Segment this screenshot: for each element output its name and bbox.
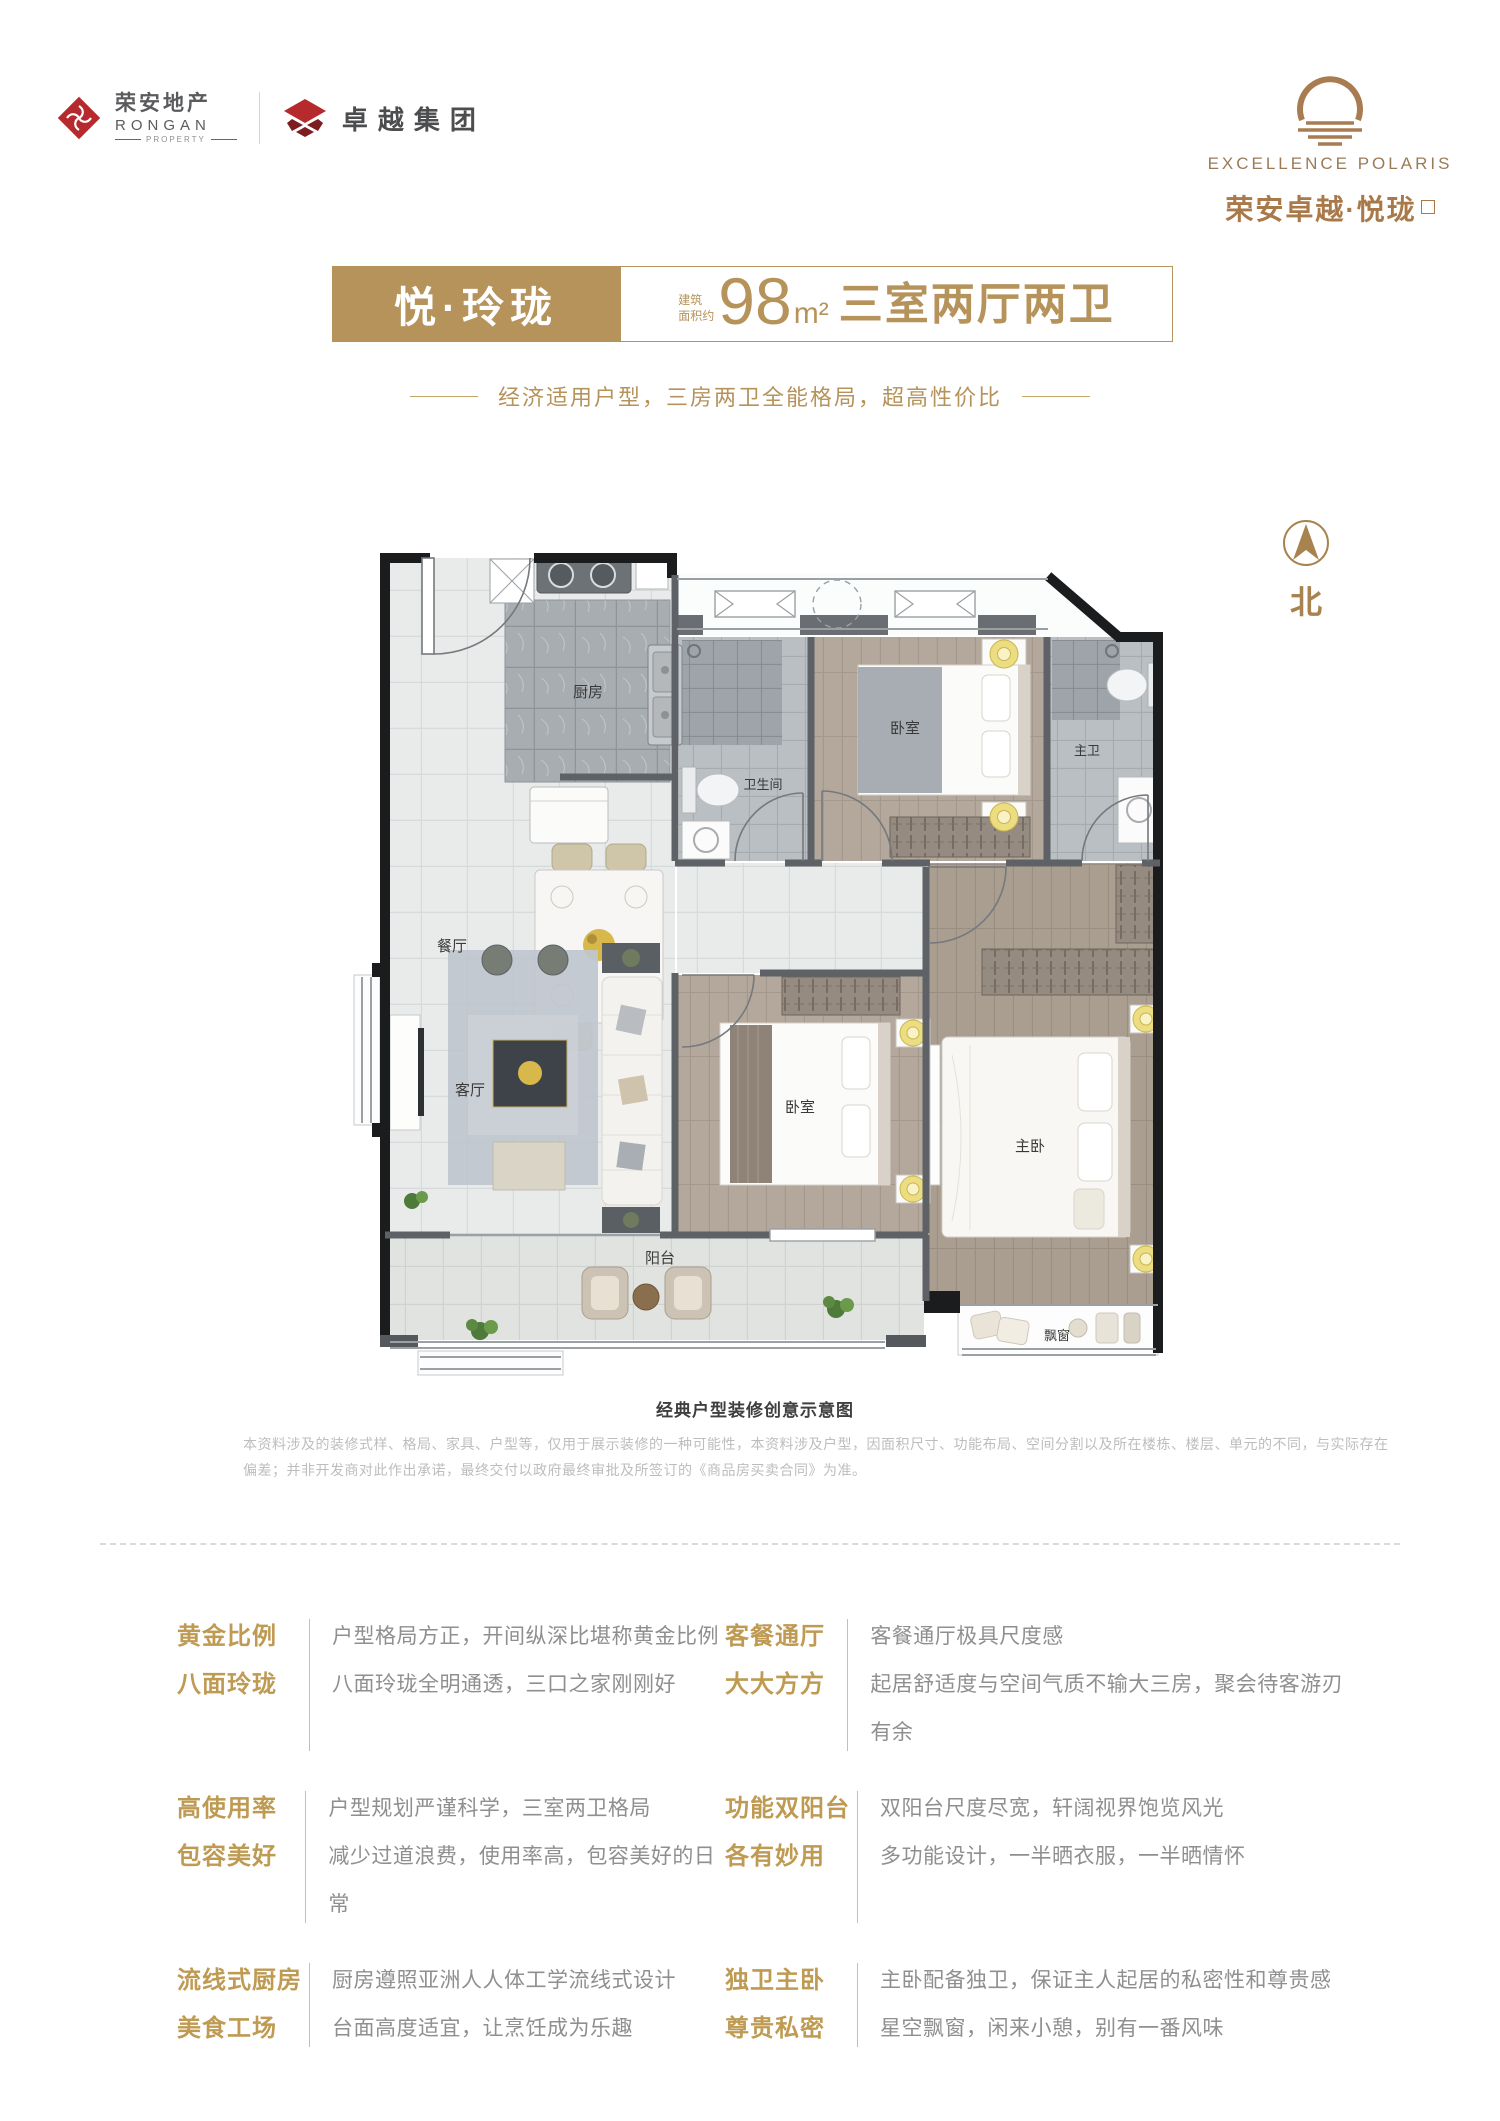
feature-title: 独卫主卧尊贵私密 (725, 1957, 851, 2053)
room-label-balcony: 阳台 (645, 1250, 675, 1267)
poster-page: 荣安地产 RONGAN PROPERTY 卓越集团 EXCELLENCE POL… (0, 0, 1500, 2121)
ceiling-lamp-icon (900, 1176, 926, 1202)
room-label-master-bedroom: 主卧 (1015, 1138, 1045, 1155)
feature-title: 高使用率包容美好 (177, 1785, 299, 1929)
area-value: 98 (718, 268, 791, 341)
developer-logos: 荣安地产 RONGAN PROPERTY 卓越集团 (55, 92, 486, 144)
ceiling-lamp-icon (990, 803, 1018, 831)
project-name-cn-row: 荣安卓越·悦珑 (1225, 188, 1434, 228)
toilet-icon (1107, 669, 1147, 701)
feature-desc: 客餐通厅极具尺度感起居舒适度与空间气质不输大三房，聚会待客游刃有余 (870, 1613, 1347, 1757)
floor-plan: 厨房 餐厅 客厅 阳台 卫生间 卧室 主卫 卧室 主卧 飘窗 (330, 545, 1180, 1380)
feature-title: 客餐通厅大大方方 (725, 1613, 841, 1757)
subtitle-line-right (1022, 396, 1090, 397)
tv-icon (418, 1028, 424, 1116)
plan-caption: 经典户型装修创意示意图 (0, 1396, 1500, 1421)
dash-left (115, 139, 141, 140)
feature-item: 客餐通厅大大方方 客餐通厅极具尺度感起居舒适度与空间气质不输大三房，聚会待客游刃… (725, 1613, 1347, 1757)
feature-divider (309, 1963, 310, 2047)
subtitle-line-left (410, 396, 478, 397)
north-label: 北 (1275, 577, 1337, 623)
feature-desc: 双阳台尺度尽宽，轩阔视界饱览风光多功能设计，一半晒衣服，一半晒情怀 (880, 1785, 1246, 1929)
zhuoyue-diamond-icon (282, 97, 328, 139)
disclaimer-text: 本资料涉及的装修式样、格局、家具、户型等，仅用于展示装修的一种可能性，本资料涉及… (243, 1432, 1393, 1484)
toilet-icon (697, 774, 739, 806)
subtitle-text: 经济适用户型，三房两卫全能格局，超高性价比 (498, 380, 1002, 412)
polaris-ring-icon (1288, 72, 1372, 148)
feature-divider (847, 1619, 848, 1751)
unit-spec-box: 建筑 面积约 98 m² 三室两厅两卫 (620, 266, 1173, 342)
wardrobe-icon (782, 977, 900, 1015)
feature-title: 流线式厨房美食工场 (177, 1957, 303, 2053)
feature-divider (857, 1791, 858, 1923)
feature-item: 独卫主卧尊贵私密 主卧配备独卫，保证主人起居的私密性和尊贵感星空飘窗，闲来小憩，… (725, 1957, 1347, 2053)
project-name-en: EXCELLENCE POLARIS (1208, 154, 1453, 174)
rongan-en: RONGAN (115, 118, 237, 133)
room-label-living: 客厅 (455, 1082, 485, 1099)
rongan-cn: 荣安地产 (115, 93, 237, 114)
room-label-master-bath: 主卫 (1074, 743, 1100, 758)
unit-name: 悦·玲珑 (332, 266, 620, 342)
fridge-icon (530, 787, 608, 843)
feature-desc: 户型格局方正，开间纵深比堪称黄金比例八面玲珑全明通透，三口之家刚刚好 (332, 1613, 719, 1757)
wardrobe-icon (982, 949, 1161, 995)
unit-title-banner: 悦·玲珑 建筑 面积约 98 m² 三室两厅两卫 (332, 266, 1173, 342)
feature-divider (309, 1619, 310, 1751)
rongan-property-line: PROPERTY (115, 136, 237, 144)
feature-divider (305, 1791, 306, 1923)
logo-separator (259, 92, 260, 144)
feature-list: 黄金比例八面玲珑 户型格局方正，开间纵深比堪称黄金比例八面玲珑全明通透，三口之家… (177, 1613, 1347, 2053)
room-label-kitchen: 厨房 (573, 684, 603, 701)
area-unit: m² (794, 297, 829, 341)
feature-item: 流线式厨房美食工场 厨房遵照亚洲人人体工学流线式设计台面高度适宜，让烹饪成为乐趣 (177, 1957, 725, 2053)
ceiling-lamp-icon (900, 1020, 926, 1046)
zhuoyue-label: 卓越集团 (342, 100, 486, 137)
feature-title: 黄金比例八面玲珑 (177, 1613, 303, 1757)
north-indicator: 北 (1275, 518, 1337, 623)
project-logo: EXCELLENCE POLARIS 荣安卓越·悦珑 (1180, 72, 1480, 228)
room-label-bathroom: 卫生间 (743, 777, 782, 792)
area-prefix: 建筑 面积约 (678, 292, 714, 341)
feature-desc: 户型规划严谨科学，三室两卫格局减少过道浪费，使用率高，包容美好的日常 (328, 1785, 725, 1929)
brand-seal-icon (1421, 200, 1435, 214)
feature-desc: 厨房遵照亚洲人人体工学流线式设计台面高度适宜，让烹饪成为乐趣 (332, 1957, 676, 2053)
tv-cabinet-icon (390, 1015, 420, 1130)
subtitle-row: 经济适用户型，三房两卫全能格局，超高性价比 (0, 380, 1500, 412)
feature-desc: 主卧配备独卫，保证主人起居的私密性和尊贵感星空飘窗，闲来小憩，别有一番风味 (880, 1957, 1332, 2053)
room-label-bedroom-north: 卧室 (890, 720, 920, 737)
feature-title: 功能双阳台各有妙用 (725, 1785, 851, 1929)
north-arrow-icon (1275, 518, 1337, 570)
ceiling-lamp-icon (990, 640, 1018, 668)
rongan-diamond-icon (55, 94, 103, 142)
feature-divider (857, 1963, 858, 2047)
feature-item: 功能双阳台各有妙用 双阳台尺度尽宽，轩阔视界饱览风光多功能设计，一半晒衣服，一半… (725, 1785, 1347, 1929)
dash-right (211, 139, 237, 140)
dashed-divider (100, 1543, 1400, 1545)
room-label-dining: 餐厅 (437, 938, 467, 955)
room-label-bedroom-second: 卧室 (785, 1099, 815, 1116)
feature-item: 高使用率包容美好 户型规划严谨科学，三室两卫格局减少过道浪费，使用率高，包容美好… (177, 1785, 725, 1929)
room-label-bay-window: 飘窗 (1044, 1328, 1070, 1343)
feature-item: 黄金比例八面玲珑 户型格局方正，开间纵深比堪称黄金比例八面玲珑全明通透，三口之家… (177, 1613, 725, 1757)
layout-text: 三室两厅两卫 (839, 268, 1115, 341)
rongan-logotype: 荣安地产 RONGAN PROPERTY (115, 93, 237, 144)
